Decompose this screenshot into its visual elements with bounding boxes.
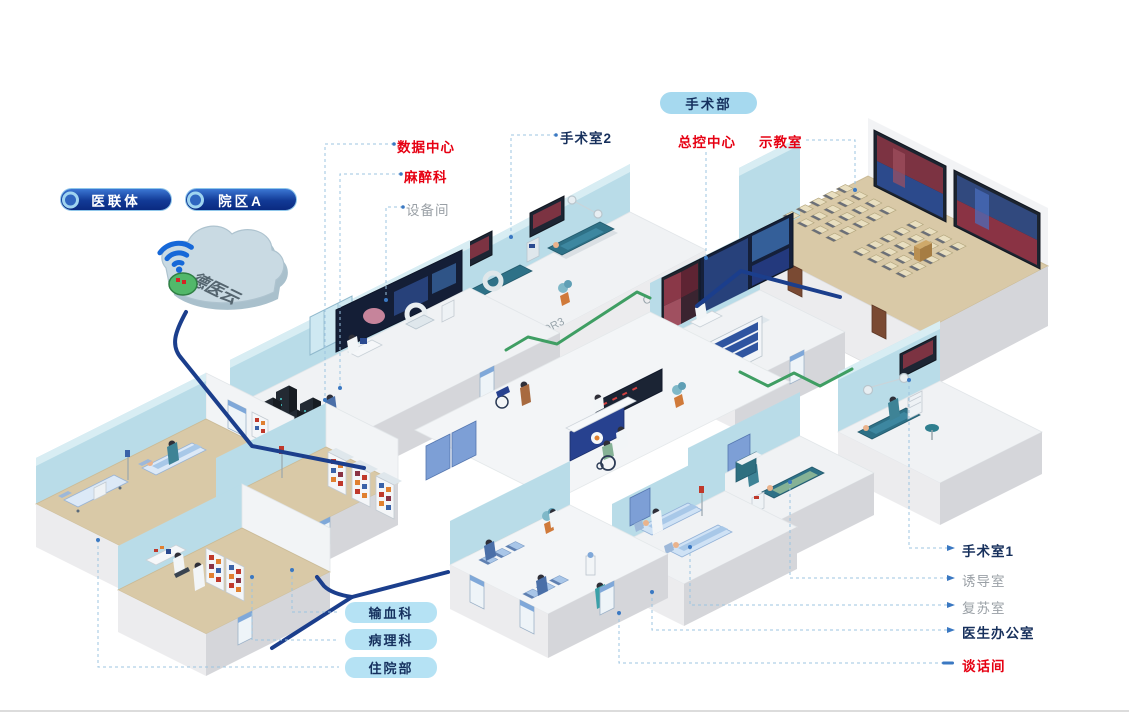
cloud-logo-button xyxy=(169,273,197,295)
or2-patient-head xyxy=(553,242,559,248)
label-induction-room: 诱导室 xyxy=(962,570,1006,590)
surgery-department-badge: 手术部 xyxy=(660,92,757,114)
label-doctor-office: 医生办公室 xyxy=(962,622,1035,642)
cloud-platform: 德医云 xyxy=(159,226,288,310)
label-equipment-room: 设备间 xyxy=(406,199,450,219)
hospital-network-diagram: OR3 OR2 xyxy=(0,0,1129,721)
label-master-control: 总控中心 xyxy=(678,131,736,151)
label-conversation-room: 谈话间 xyxy=(962,655,1006,675)
waiting-building xyxy=(450,461,668,658)
label-operating-room-1: 手术室1 xyxy=(962,540,1014,560)
blood-transfusion-pill: 输血科 xyxy=(345,602,437,623)
consortium-pill: 医联体 xyxy=(60,188,172,211)
label-recovery-room: 复苏室 xyxy=(962,597,1006,617)
inpatient-pill: 住院部 xyxy=(345,657,437,678)
isometric-scene: OR3 OR2 xyxy=(0,0,1129,721)
connector-conversation xyxy=(619,613,942,663)
label-demo-classroom: 示教室 xyxy=(759,131,803,151)
bottom-divider xyxy=(0,710,1129,712)
label-data-center: 数据中心 xyxy=(397,136,455,156)
pathology-technician-standing xyxy=(193,563,205,592)
pathology-pill: 病理科 xyxy=(345,629,437,650)
label-operating-room-2: 手术室2 xyxy=(560,127,612,147)
campus-pill: 院区A xyxy=(185,188,297,211)
connector-classroom xyxy=(806,140,855,190)
label-anesthesiology: 麻醉科 xyxy=(404,166,448,186)
